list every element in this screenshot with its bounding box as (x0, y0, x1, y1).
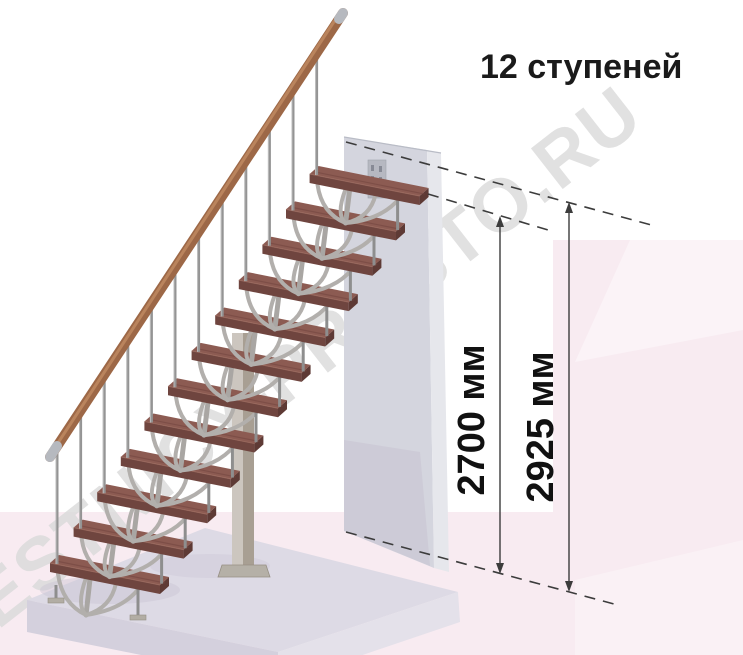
page-title: 12 ступеней (480, 48, 682, 86)
staircase-diagram-canvas: LESTNICY-PROSTO.RU (0, 0, 743, 655)
column-base-plate (218, 565, 270, 577)
handrail-end-cap-bottom (50, 446, 57, 457)
leg-foot-plate (130, 615, 146, 620)
dimension-label-2700: 2700 мм (451, 344, 493, 495)
staircase-diagram: LESTNICY-PROSTO.RU (0, 0, 743, 655)
handrail-end-cap-top (339, 13, 343, 19)
dimension-label-2925: 2925 мм (520, 351, 562, 502)
leg-foot-plate (48, 598, 64, 603)
